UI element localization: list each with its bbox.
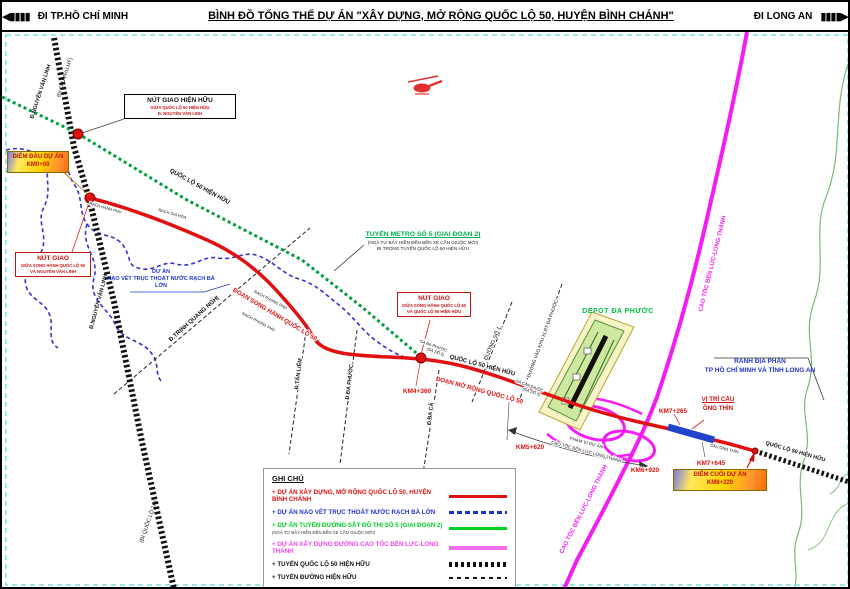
start-point-km: KM0+00 [10,162,66,170]
leader-bridge-position [692,420,704,429]
legend-swatch-project [449,495,507,498]
legend-title: GHI CHÚ [272,474,507,483]
junction-mid-line3: VÀ QUỐC LỘ 50 HIỆN HỮU [400,309,468,314]
callout-existing-junction-title: NÚT GIAO HIỆN HỮU [127,97,233,105]
legend-row-ql50-existing: + TUYẾN QUỐC LỘ 50 HIỆN HỮU [272,561,507,568]
callout-dredge-project: DỰ ÁN NẠO VÉT TRỤC THOÁT NƯỚC RẠCH BÀ LỚ… [107,269,215,290]
legend-label-existing-road: + TUYẾN ĐƯỜNG HIỆN HỮU [272,574,356,581]
leader-km7-265 [674,414,680,425]
label-tan-liem: Đ.TÂN LIÊM [292,357,304,390]
leader-km7-645 [702,442,705,457]
leader-km4-360 [416,363,420,386]
legend-label-ql50-existing: + TUYẾN QUỐC LỘ 50 HIỆN HỮU [272,561,370,568]
callout-junction-mid: NÚT GIAO GIỮA SONG HÀNH QUỐC LỘ 50 VÀ QU… [397,292,471,317]
road-trinh-quang-nghi [114,228,310,394]
boundary-detail-line [808,472,850,550]
label-ba-ca: Đ.BA CẢ [426,402,436,425]
legend-row-dredge: + DỰ ÁN NẠO VÉT TRỤC THOÁT NƯỚC RẠCH BÀ … [272,509,507,516]
callout-boundary: RANH ĐỊA PHẬN TP HỒ CHÍ MINH VÀ TỈNH LON… [690,357,830,375]
legend-swatch-metro [449,527,507,531]
legend-label-metro: + DỰ ÁN TUYẾN ĐƯỜNG SẮT ĐÔ THỊ SỐ 5 (GIA… [272,522,442,529]
drawing-title: BÌNH ĐỒ TỔNG THỂ DỰ ÁN "XÂY DỰNG, MỞ RỘN… [136,10,746,22]
legend-row-expressway: + DỰ ÁN XÂY DỰNG ĐƯỜNG CAO TỐC BẾN LỨC-L… [272,541,507,555]
junction-left-title: NÚT GIAO [18,255,88,263]
label-widening-section: ĐOẠN MỞ RỘNG QUỐC LỘ 50 [435,375,524,406]
title-bar: ◀▮▮▮▮ ĐI TP.HỒ CHÍ MINH BÌNH ĐỒ TỔNG THỂ… [2,2,848,32]
callout-bridge-position: VỊ TRÍ CẦU ÔNG THÌN [688,396,748,413]
label-expressway-bottom: CAO TỐC BẾN LỨC-LONG THÀNH [558,464,609,555]
legend-swatch-expressway [449,546,507,550]
legend-swatch-existing-road [449,577,507,579]
callout-existing-junction: NÚT GIAO HIỆN HỮU GIỮA QUỐC LỘ 50 HIỆN H… [124,94,236,119]
callout-metro: TUYẾN METRO SỐ 5 (GIAI ĐOẠN 2) (NGÃ TƯ B… [332,231,514,252]
label-expressway-top: CAO TỐC BẾN LỨC-LONG THÀNH [697,215,728,312]
depot-title: DEPOT ĐA PHƯỚC [582,308,653,315]
label-trinh-quang-nghi: Đ.TRỊNH QUANG NGHỊ [168,295,221,343]
boundary-line1: RANH ĐỊA PHẬN [690,357,830,366]
end-point-km: KM8+220 [676,480,764,488]
direction-arrow-left-icon: ◀▮▮▮▮ [2,10,30,23]
dredge-line2: NẠO VÉT TRỤC THOÁT NƯỚC RẠCH BÀ LỚN [107,276,215,290]
callout-existing-junction-line3: Đ. NGUYỄN VĂN LINH [127,111,233,116]
label-waste-road: ĐƯỜNG VÀO KHU XLRT ĐA PHƯỚC [525,298,560,379]
bridge-position-line1: VỊ TRÍ CẦU [688,396,748,405]
legend-sub-metro: (NGÃ TƯ BẢY HIỀN ĐẾN BẾN XE CẦN GIUỘC MỚ… [272,530,442,535]
km-marker-6-920: KM6+920 [631,467,660,474]
km-marker-7-645: KM7+645 [697,460,726,467]
legend-row-existing-road: + TUYẾN ĐƯỜNG HIỆN HỮU [272,574,507,581]
legend-swatch-dredge [449,511,507,514]
label-duong-so-1: ĐƯỜNG SỐ 1 [482,326,502,362]
legend-row-project: + DỰ ÁN XÂY DỰNG, MỞ RỘNG QUỐC LỘ 50, HU… [272,489,507,503]
waterway-branch-west [25,154,58,348]
end-point-title: ĐIỂM CUỐI DỰ ÁN [676,472,764,480]
destination-right: ĐI LONG AN [746,11,821,22]
junction-mid-title: NÚT GIAO [400,295,468,303]
direction-arrow-right-icon: ▮▮▮▮▶ [820,10,848,23]
metro-title: TUYẾN METRO SỐ 5 (GIAI ĐOẠN 2) [332,231,514,240]
callout-junction-left: NÚT GIAO GIỮA SONG HÀNH QUỐC LỘ 50 VÀ NG… [15,252,91,277]
ong-thin-bridge-segment [668,427,714,440]
depot-building-2 [573,374,580,380]
metro-line3: ĐI TRONG TUYẾN QUỐC LỘ 50 HIỆN HỮU [332,246,514,252]
junction-left-line3: VÀ NGUYỄN VĂN LINH [18,269,88,274]
scope-arrow-left [508,427,517,435]
leader-km5-620 [507,402,509,440]
callout-end-point: ĐIỂM CUỐI DỰ ÁN KM8+220 [673,469,767,491]
junction-dot-nvl-ql50 [73,129,83,139]
bridge-position-line2: ÔNG THÌN [688,405,748,414]
label-nvl-dir-bottom: (ĐI QUỐC LỘ 1A) [138,499,159,543]
legend-label-project: + DỰ ÁN XÂY DỰNG, MỞ RỘNG QUỐC LỘ 50, HU… [272,489,443,503]
province-boundary-line [794,64,848,589]
callout-depot: DEPOT ĐA PHƯỚC [559,307,677,316]
start-point-title: ĐIỂM ĐẦU DỰ ÁN [10,154,66,162]
legend-label-dredge: + DỰ ÁN NẠO VÉT TRỤC THOÁT NƯỚC RẠCH BÀ … [272,509,435,516]
km-marker-4-360: KM4+360 [403,388,432,395]
label-nvl-top: Đ.NGUYỄN VĂN LINH [29,64,53,120]
helicopter-icon [408,76,442,94]
label-da-phuoc-road: Đ.ĐA PHƯỚC [343,364,355,400]
map-canvas: Đ.NGUYỄN VĂN LINH (ĐI CẦU PHÚ MỸ) Đ.NGUY… [2,32,850,589]
legend-swatch-ql50-existing [449,562,507,567]
plan-drawing-frame: ◀▮▮▮▮ ĐI TP.HỒ CHÍ MINH BÌNH ĐỒ TỔNG THỂ… [0,0,850,589]
label-stream-2: RẠCH GIA HÒA [158,207,187,220]
km-marker-7-265: KM7+265 [659,408,688,415]
legend-label-expressway: + DỰ ÁN XÂY DỰNG ĐƯỜNG CAO TỐC BẾN LỨC-L… [272,541,443,555]
metro-line-5-route [2,97,421,357]
legend-row-metro: + DỰ ÁN TUYẾN ĐƯỜNG SẮT ĐÔ THỊ SỐ 5 (GIA… [272,522,507,535]
destination-left: ĐI TP.HỒ CHÍ MINH [30,11,136,22]
legend: GHI CHÚ + DỰ ÁN XÂY DỰNG, MỞ RỘNG QUỐC L… [263,468,516,589]
boundary-line2: TP HỒ CHÍ MINH VÀ TỈNH LONG AN [690,366,830,375]
label-ql50-existing-top: QUỐC LỘ 50 HIỆN HỮU [168,166,231,206]
leader-existing-junction [82,119,124,133]
km-marker-5-620: KM5+620 [516,444,545,451]
callout-start-point: ĐIỂM ĐẦU DỰ ÁN KM0+00 [7,151,69,173]
depot-building-1 [584,348,591,354]
